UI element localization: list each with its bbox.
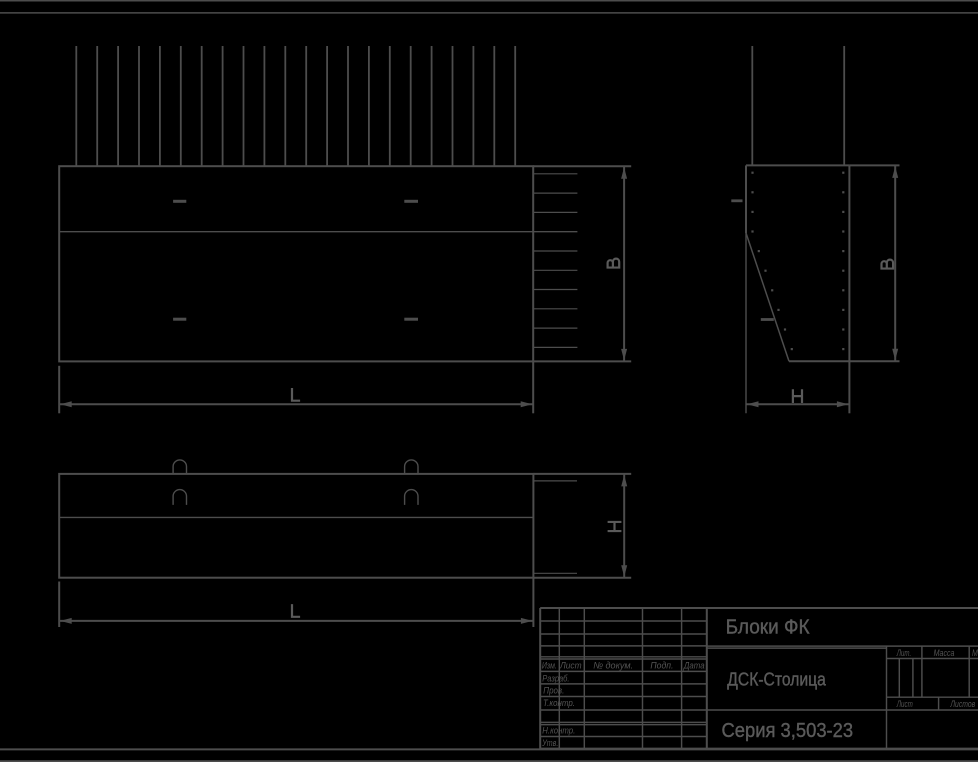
svg-text:Н.контр.: Н.контр.: [542, 726, 575, 737]
svg-text:Лит.: Лит.: [896, 648, 911, 659]
svg-text:Блоки ФК: Блоки ФК: [726, 617, 810, 639]
svg-text:Разраб.: Разраб.: [542, 673, 569, 684]
svg-text:Масса: Масса: [934, 648, 955, 659]
svg-text:ДСК-Столица: ДСК-Столица: [727, 668, 826, 689]
svg-text:Лист: Лист: [896, 699, 913, 710]
svg-text:Листов: Листов: [950, 699, 976, 710]
svg-text:№ докум.: № докум.: [593, 660, 633, 671]
svg-text:Т.контр.: Т.контр.: [543, 698, 575, 709]
svg-text:Серия 3,503-23: Серия 3,503-23: [722, 720, 854, 742]
svg-text:Подп.: Подп.: [650, 660, 673, 671]
svg-text:Лист: Лист: [559, 660, 582, 671]
svg-text:Пров.: Пров.: [543, 686, 564, 697]
svg-text:Изм.: Изм.: [542, 660, 557, 671]
svg-text:Утв.: Утв.: [542, 738, 559, 749]
svg-text:Дата: Дата: [683, 660, 705, 671]
svg-text:Масштаб: Масштаб: [972, 648, 978, 659]
